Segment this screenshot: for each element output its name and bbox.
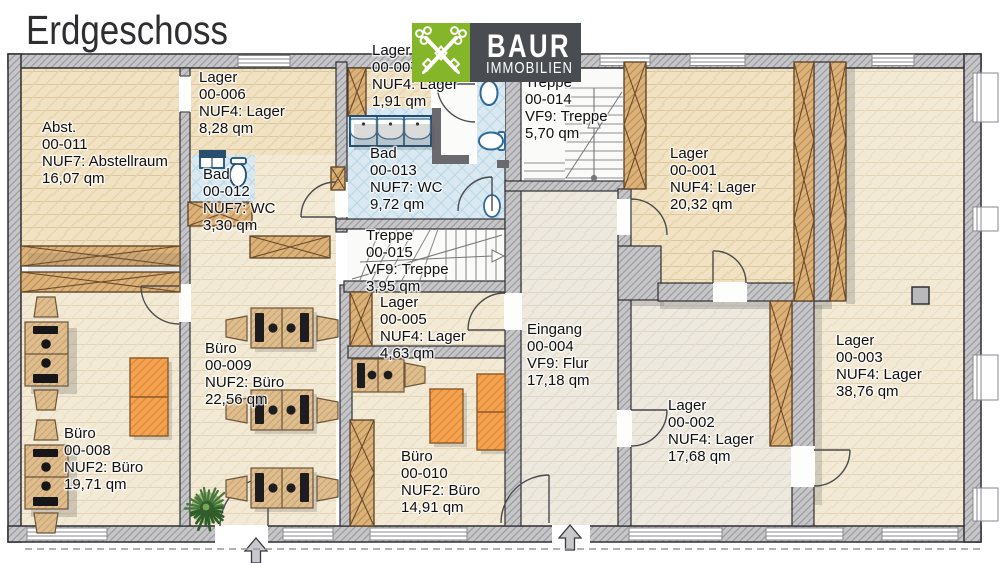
svg-text:NUF7: WC: NUF7: WC	[370, 179, 443, 196]
svg-text:3,30 qm: 3,30 qm	[203, 217, 257, 234]
svg-text:00-003: 00-003	[836, 349, 883, 366]
svg-text:Büro: Büro	[64, 425, 96, 442]
svg-text:NUF2: Büro: NUF2: Büro	[205, 374, 284, 391]
svg-text:NUF2: Büro: NUF2: Büro	[64, 459, 143, 476]
svg-text:Erdgeschoss: Erdgeschoss	[26, 7, 228, 53]
svg-text:Büro: Büro	[401, 448, 433, 465]
svg-text:Treppe: Treppe	[366, 227, 413, 244]
svg-text:NUF7: Abstellraum: NUF7: Abstellraum	[42, 153, 168, 170]
svg-text:00-004: 00-004	[527, 338, 574, 355]
svg-text:8,28 qm: 8,28 qm	[199, 120, 253, 137]
svg-text:00-005: 00-005	[380, 311, 427, 328]
svg-text:NUF2: Büro: NUF2: Büro	[401, 482, 480, 499]
svg-text:22,56 qm: 22,56 qm	[205, 391, 268, 408]
svg-text:00-006: 00-006	[199, 86, 246, 103]
svg-text:00-002: 00-002	[668, 414, 715, 431]
svg-text:Bad: Bad	[203, 166, 230, 183]
svg-text:00-009: 00-009	[205, 357, 252, 374]
svg-text:00-011: 00-011	[42, 136, 88, 153]
svg-text:NUF4: Lager: NUF4: Lager	[668, 431, 754, 448]
svg-text:NUF4: Lager: NUF4: Lager	[380, 328, 466, 345]
svg-text:NUF7: WC: NUF7: WC	[203, 200, 276, 217]
svg-text:4,63 qm: 4,63 qm	[380, 345, 434, 362]
svg-text:00-015: 00-015	[366, 244, 413, 261]
svg-text:VF9: Treppe: VF9: Treppe	[525, 108, 608, 125]
svg-text:00-012: 00-012	[203, 183, 250, 200]
svg-text:3,95 qm: 3,95 qm	[366, 278, 420, 295]
svg-text:VF9: Treppe: VF9: Treppe	[366, 261, 449, 278]
svg-text:9,72 qm: 9,72 qm	[370, 196, 424, 213]
svg-text:00-014: 00-014	[525, 91, 572, 108]
svg-text:16,07 qm: 16,07 qm	[42, 170, 105, 187]
svg-text:NUF4: Lager: NUF4: Lager	[199, 103, 285, 120]
svg-text:Lager: Lager	[670, 145, 708, 162]
svg-text:Lager: Lager	[372, 42, 410, 59]
svg-text:17,68 qm: 17,68 qm	[668, 448, 731, 465]
svg-text:00-007: 00-007	[372, 59, 419, 76]
svg-text:1,91 qm: 1,91 qm	[372, 93, 426, 110]
svg-text:VF9: Flur: VF9: Flur	[527, 355, 589, 372]
svg-text:00-001: 00-001	[670, 162, 717, 179]
svg-text:Eingang: Eingang	[527, 321, 582, 338]
svg-text:38,76 qm: 38,76 qm	[836, 383, 899, 400]
svg-text:5,70 qm: 5,70 qm	[525, 125, 579, 142]
svg-text:Abst.: Abst.	[42, 119, 76, 136]
svg-text:17,18 qm: 17,18 qm	[527, 372, 590, 389]
svg-text:20,32 qm: 20,32 qm	[670, 196, 733, 213]
svg-text:Lager: Lager	[668, 397, 706, 414]
svg-text:00-008: 00-008	[64, 442, 111, 459]
svg-text:IMMOBILIEN: IMMOBILIEN	[486, 60, 573, 77]
svg-text:Lager: Lager	[199, 69, 237, 86]
svg-text:Lager: Lager	[836, 332, 874, 349]
svg-text:BAUR: BAUR	[487, 28, 571, 64]
svg-text:NUF4: Lager: NUF4: Lager	[836, 366, 922, 383]
svg-text:14,91 qm: 14,91 qm	[401, 499, 464, 516]
svg-text:Bad: Bad	[370, 145, 397, 162]
svg-text:00-010: 00-010	[401, 465, 448, 482]
svg-text:19,71 qm: 19,71 qm	[64, 476, 127, 493]
svg-text:Lager: Lager	[380, 294, 418, 311]
svg-text:NUF4: Lager: NUF4: Lager	[670, 179, 756, 196]
svg-text:Büro: Büro	[205, 340, 237, 357]
svg-text:00-013: 00-013	[370, 162, 417, 179]
